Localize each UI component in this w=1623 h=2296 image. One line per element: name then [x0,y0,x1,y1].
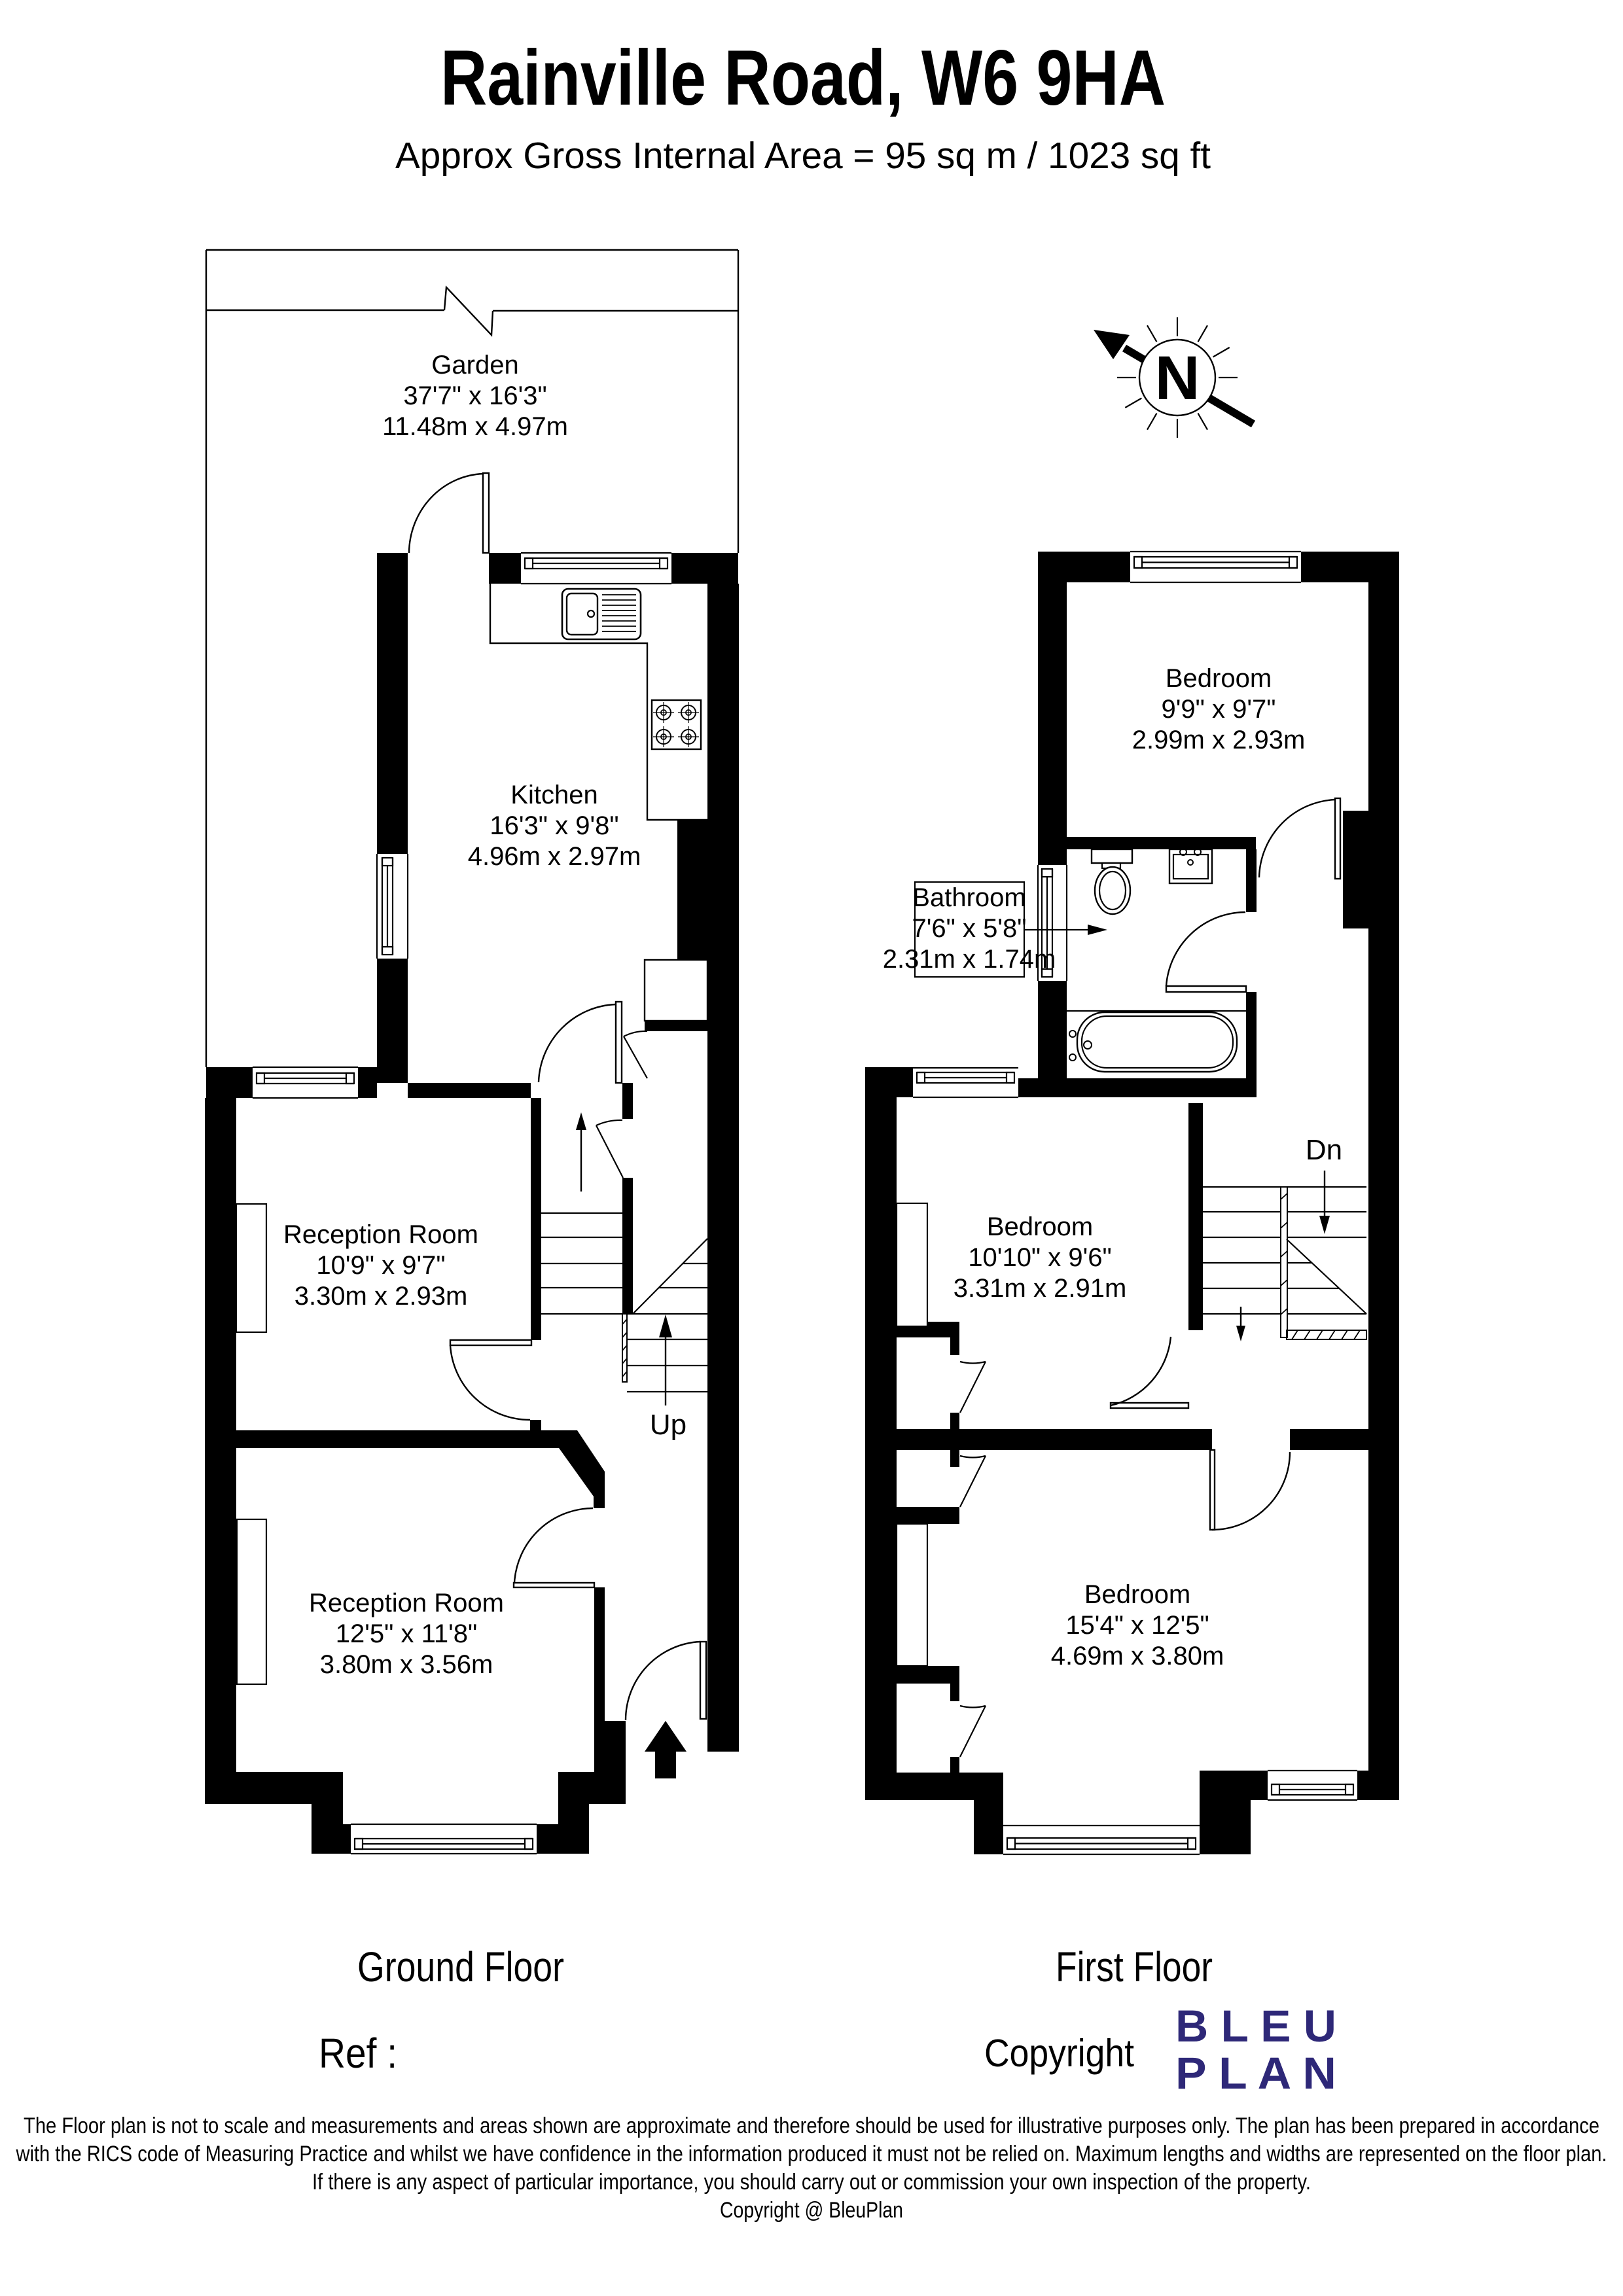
svg-text:3.30m x 2.93m: 3.30m x 2.93m [294,1282,468,1311]
svg-text:7'6" x 5'8": 7'6" x 5'8" [912,914,1027,943]
svg-text:Bedroom: Bedroom [987,1212,1093,1241]
svg-text:37'7" x 16'3": 37'7" x 16'3" [403,381,546,410]
svg-text:Rainville Road, W6 9HA: Rainville Road, W6 9HA [440,34,1166,122]
svg-text:Up: Up [650,1409,687,1441]
svg-text:11.48m x 4.97m: 11.48m x 4.97m [382,412,568,441]
svg-text:First Floor: First Floor [1056,1943,1213,1990]
svg-text:12'5" x 11'8": 12'5" x 11'8" [336,1619,477,1648]
svg-text:3.31m x 2.91m: 3.31m x 2.91m [954,1274,1127,1303]
svg-text:The Floor plan is not to scale: The Floor plan is not to scale and measu… [24,2113,1599,2138]
svg-text:Approx Gross Internal Area = 9: Approx Gross Internal Area = 95 sq m / 1… [395,135,1211,177]
svg-text:4.96m x 2.97m: 4.96m x 2.97m [468,842,641,871]
svg-text:Bedroom: Bedroom [1166,664,1272,693]
svg-text:15'4" x 12'5": 15'4" x 12'5" [1065,1611,1209,1640]
svg-text:N: N [1155,344,1200,413]
svg-text:4.69m x 3.80m: 4.69m x 3.80m [1051,1642,1224,1670]
svg-text:Bedroom: Bedroom [1084,1580,1190,1609]
svg-text:with the RICS code of Measurin: with the RICS code of Measuring Practice… [16,2142,1607,2166]
svg-text:Ref :: Ref : [319,2030,397,2077]
svg-text:B L E U: B L E U [1175,2001,1336,2051]
svg-text:Garden: Garden [431,351,518,380]
svg-text:16'3" x 9'8": 16'3" x 9'8" [490,811,618,840]
svg-text:Reception Room: Reception Room [309,1589,504,1617]
svg-text:Dn: Dn [1306,1134,1342,1166]
svg-text:P L A N: P L A N [1175,2048,1336,2098]
svg-text:Ground Floor: Ground Floor [357,1943,564,1990]
svg-text:2.31m x 1.74m: 2.31m x 1.74m [883,945,1056,974]
svg-text:Reception Room: Reception Room [283,1220,478,1249]
svg-text:If there is any aspect of part: If there is any aspect of particular imp… [312,2170,1311,2195]
svg-text:3.80m x 3.56m: 3.80m x 3.56m [320,1650,493,1679]
svg-text:9'9" x 9'7": 9'9" x 9'7" [1162,695,1276,724]
svg-text:2.99m x 2.93m: 2.99m x 2.93m [1132,726,1306,754]
svg-text:10'9" x 9'7": 10'9" x 9'7" [316,1251,445,1280]
svg-text:Bathroom: Bathroom [912,883,1026,912]
svg-text:10'10" x 9'6": 10'10" x 9'6" [968,1243,1111,1272]
svg-text:Copyright @ BleuPlan: Copyright @ BleuPlan [720,2198,903,2223]
svg-text:Copyright: Copyright [984,2032,1134,2075]
svg-text:Kitchen: Kitchen [510,781,597,809]
